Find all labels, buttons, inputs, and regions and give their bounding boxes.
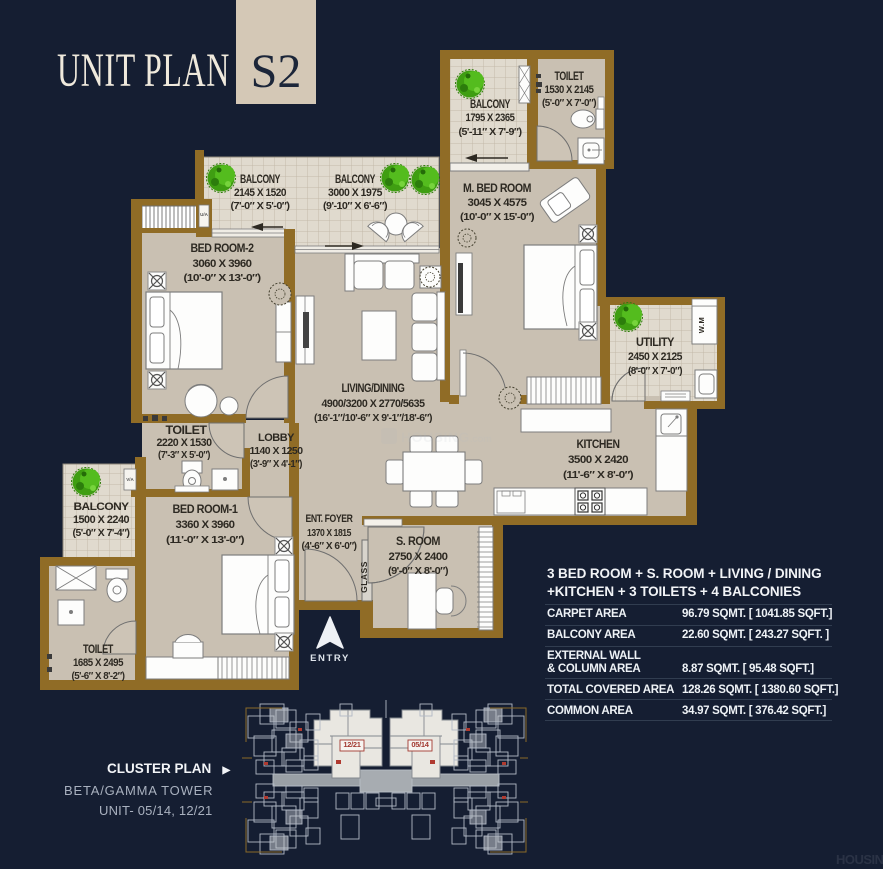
svg-text:3000 X 1975: 3000 X 1975 — [328, 187, 382, 199]
svg-text:(11'-6″ X 8'-0″): (11'-6″ X 8'-0″) — [563, 470, 633, 481]
svg-text:M. BED ROOM: M. BED ROOM — [463, 181, 531, 195]
svg-text:(9'-0″ X 8'-0″): (9'-0″ X 8'-0″) — [388, 566, 448, 577]
svg-text:(5'-0″ X 7'-4″): (5'-0″ X 7'-4″) — [73, 528, 130, 539]
svg-text:3060 X 3960: 3060 X 3960 — [193, 258, 252, 270]
svg-text:1140 X 1250: 1140 X 1250 — [250, 446, 304, 457]
svg-text:2220 X 1530: 2220 X 1530 — [157, 437, 212, 449]
svg-text:TOILET: TOILET — [166, 423, 208, 437]
svg-text:BALCONY: BALCONY — [240, 172, 280, 186]
svg-text:1795 X 2365: 1795 X 2365 — [466, 112, 515, 124]
svg-text:W.M: W.M — [697, 317, 706, 334]
svg-text:(3'-9″ X 4'-1″): (3'-9″ X 4'-1″) — [250, 459, 302, 470]
svg-text:BED ROOM-2: BED ROOM-2 — [191, 241, 255, 255]
svg-text:3360 X 3960: 3360 X 3960 — [176, 519, 235, 531]
svg-text:(5'-6″ X 8'-2″): (5'-6″ X 8'-2″) — [72, 671, 125, 682]
svg-text:HOUSIN: HOUSIN — [836, 852, 883, 867]
svg-text:BALCONY: BALCONY — [470, 97, 510, 111]
svg-text:(11'-0″ X 13'-0″): (11'-0″ X 13'-0″) — [166, 535, 244, 546]
svg-text:ENT. FOYER: ENT. FOYER — [306, 513, 353, 525]
svg-text:(5'-11″ X 7'-9″): (5'-11″ X 7'-9″) — [459, 127, 522, 138]
svg-text:V/A: V/A — [126, 477, 134, 482]
svg-text:05/14: 05/14 — [411, 740, 429, 749]
svg-text:(16'-1″/10'-6″ X 9'-1″/18'-6″): (16'-1″/10'-6″ X 9'-1″/18'-6″) — [314, 413, 432, 424]
svg-text:(7'-0″ X 5'-0″): (7'-0″ X 5'-0″) — [231, 201, 290, 212]
svg-text:2145 X 1520: 2145 X 1520 — [234, 187, 286, 199]
svg-text:(4'-6″ X 6'-0″): (4'-6″ X 6'-0″) — [302, 541, 357, 552]
svg-text:(7'-3″ X 5'-0″): (7'-3″ X 5'-0″) — [158, 450, 210, 461]
svg-text:1530 X 2145: 1530 X 2145 — [545, 84, 594, 96]
svg-text:(10'-0″ X 13'-0″): (10'-0″ X 13'-0″) — [184, 273, 261, 284]
svg-text:.com: .com — [470, 434, 492, 445]
svg-text:BALCONY: BALCONY — [335, 172, 375, 186]
svg-text:(8'-0″ X 7'-0″): (8'-0″ X 7'-0″) — [628, 366, 682, 377]
svg-text:TOILET: TOILET — [83, 642, 114, 656]
svg-text:2750 X 2400: 2750 X 2400 — [389, 551, 448, 563]
svg-text:ENTRY: ENTRY — [310, 653, 350, 664]
svg-text:4900/3200 X 2770/5635: 4900/3200 X 2770/5635 — [322, 398, 425, 410]
svg-text:12/21: 12/21 — [343, 740, 360, 749]
svg-text:3045 X 4575: 3045 X 4575 — [468, 197, 527, 209]
svg-text:1685 X 2495: 1685 X 2495 — [73, 657, 123, 669]
svg-text:U/A: U/A — [200, 212, 209, 217]
svg-text:S. ROOM: S. ROOM — [396, 534, 440, 548]
svg-text:UTILITY: UTILITY — [636, 335, 674, 349]
svg-text:BED ROOM-1: BED ROOM-1 — [173, 502, 239, 516]
svg-text:3500 X 2420: 3500 X 2420 — [568, 454, 628, 466]
svg-text:1500 X 2240: 1500 X 2240 — [73, 514, 129, 526]
svg-text:(9'-10″ X 6'-6″): (9'-10″ X 6'-6″) — [323, 201, 387, 212]
svg-text:KITCHEN: KITCHEN — [577, 437, 620, 451]
svg-text:HOUSING: HOUSING — [401, 429, 470, 445]
svg-text:(5'-0″ X 7'-0″): (5'-0″ X 7'-0″) — [542, 98, 596, 109]
svg-text:2450 X 2125: 2450 X 2125 — [628, 351, 682, 363]
svg-text:LIVING/DINING: LIVING/DINING — [342, 381, 405, 395]
svg-text:TOILET: TOILET — [555, 69, 585, 83]
svg-text:BALCONY: BALCONY — [74, 501, 130, 513]
svg-text:(10'-0″ X 15'-0″): (10'-0″ X 15'-0″) — [460, 212, 534, 223]
svg-text:1370 X 1815: 1370 X 1815 — [307, 528, 352, 539]
svg-text:LOBBY: LOBBY — [258, 432, 295, 444]
